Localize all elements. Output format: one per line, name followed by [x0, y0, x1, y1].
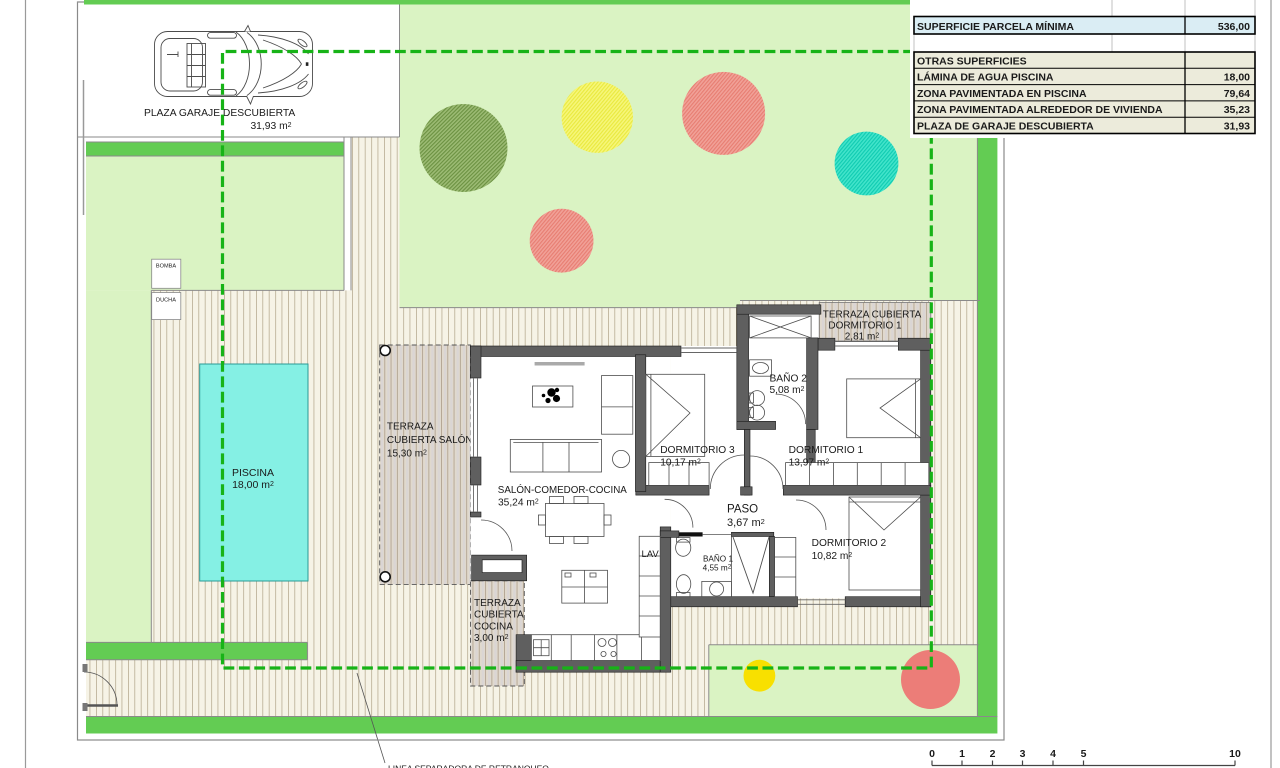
- svg-text:0: 0: [929, 748, 935, 760]
- svg-text:LAV: LAV: [642, 549, 660, 560]
- svg-text:15,30 m2: 15,30 m2: [387, 448, 427, 459]
- svg-text:10,82 m2: 10,82 m2: [812, 551, 853, 562]
- svg-text:SALÓN-COMEDOR-COCINA: SALÓN-COMEDOR-COCINA: [498, 485, 627, 496]
- svg-text:4,55 m2: 4,55 m2: [703, 563, 732, 572]
- svg-text:4: 4: [1050, 748, 1056, 760]
- svg-text:COCINA: COCINA: [474, 621, 513, 632]
- svg-text:DUCHA: DUCHA: [156, 298, 176, 304]
- svg-text:PASO: PASO: [727, 504, 758, 516]
- svg-text:31,93: 31,93: [1224, 121, 1250, 133]
- svg-text:SUPERFICIE PARCELA MÍNIMA: SUPERFICIE PARCELA MÍNIMA: [917, 20, 1074, 33]
- svg-text:PLAZA GARAJE DESCUBIERTA: PLAZA GARAJE DESCUBIERTA: [144, 108, 295, 119]
- svg-text:5: 5: [1081, 748, 1087, 760]
- svg-text:2,81 m2: 2,81 m2: [845, 332, 880, 343]
- svg-text:DORMITORIO 2: DORMITORIO 2: [812, 538, 887, 549]
- svg-text:CUBIERTA SALÓN: CUBIERTA SALÓN: [387, 433, 473, 446]
- svg-text:3,67 m2: 3,67 m2: [727, 517, 765, 529]
- svg-text:BOMBA: BOMBA: [156, 264, 176, 270]
- svg-text:BAÑO 2: BAÑO 2: [770, 372, 808, 385]
- svg-text:ZONA PAVIMENTADA ALREDEDOR DE: ZONA PAVIMENTADA ALREDEDOR DE VIVIENDA: [917, 104, 1163, 116]
- svg-text:TERRAZA CUBIERTA: TERRAZA CUBIERTA: [823, 310, 922, 321]
- svg-text:3,00 m2: 3,00 m2: [474, 633, 509, 644]
- svg-text:35,23: 35,23: [1224, 104, 1250, 116]
- svg-text:CUBIERTA: CUBIERTA: [474, 610, 524, 621]
- svg-text:79,64: 79,64: [1224, 88, 1250, 100]
- svg-text:13,97 m2: 13,97 m2: [789, 458, 830, 469]
- svg-text:TERRAZA: TERRAZA: [474, 598, 521, 609]
- svg-text:LINEA SEPARADORA DE RETRANQUEO: LINEA SEPARADORA DE RETRANQUEO: [388, 764, 549, 768]
- svg-text:35,24 m2: 35,24 m2: [498, 498, 539, 509]
- svg-text:3: 3: [1020, 748, 1026, 760]
- svg-text:DORMITORIO 1: DORMITORIO 1: [789, 445, 864, 456]
- svg-text:5,08 m2: 5,08 m2: [770, 385, 805, 396]
- svg-text:18,00 m2: 18,00 m2: [232, 479, 274, 491]
- svg-text:2: 2: [990, 748, 996, 760]
- svg-text:DORMITORIO 3: DORMITORIO 3: [660, 445, 735, 456]
- svg-text:OTRAS SUPERFICIES: OTRAS SUPERFICIES: [917, 55, 1027, 67]
- svg-text:PISCINA: PISCINA: [232, 467, 274, 479]
- svg-text:10: 10: [1229, 748, 1241, 760]
- svg-text:LÁMINA DE AGUA PISCINA: LÁMINA DE AGUA PISCINA: [917, 71, 1054, 84]
- svg-text:ZONA PAVIMENTADA EN PISCINA: ZONA PAVIMENTADA EN PISCINA: [917, 88, 1087, 100]
- svg-text:BAÑO 1: BAÑO 1: [703, 554, 733, 564]
- svg-text:10,17 m2: 10,17 m2: [660, 458, 701, 469]
- svg-text:31,93 m2: 31,93 m2: [250, 121, 291, 132]
- svg-text:1: 1: [959, 748, 965, 760]
- svg-text:TERRAZA: TERRAZA: [387, 422, 434, 433]
- svg-text:DORMITORIO 1: DORMITORIO 1: [828, 321, 902, 332]
- svg-text:536,00: 536,00: [1218, 21, 1250, 33]
- svg-text:18,00: 18,00: [1224, 72, 1250, 84]
- svg-text:PLAZA DE GARAJE DESCUBIERTA: PLAZA DE GARAJE DESCUBIERTA: [917, 121, 1094, 133]
